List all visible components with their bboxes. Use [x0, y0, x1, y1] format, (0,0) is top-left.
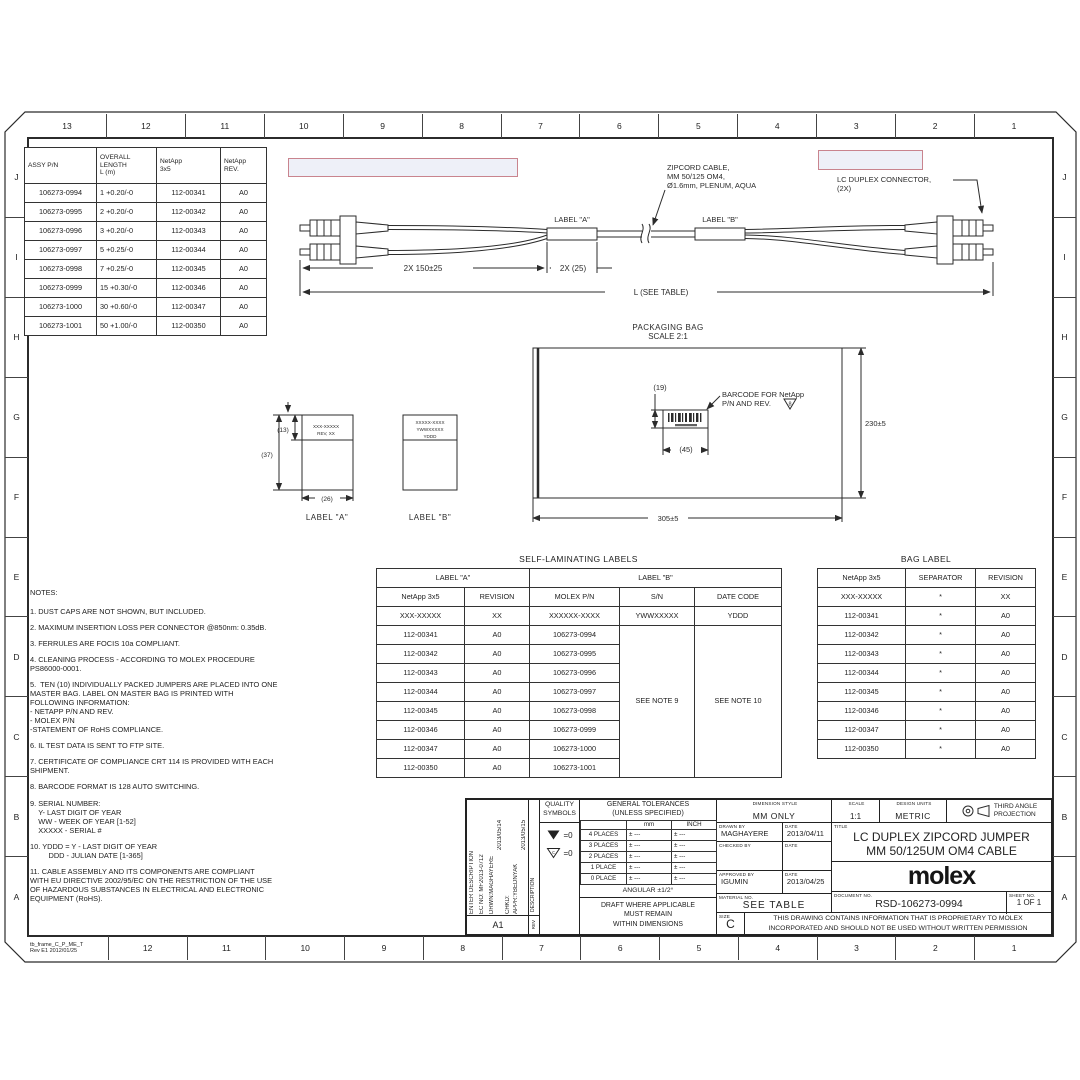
note-item: 8. BARCODE FORMAT IS 128 AUTO SWITCHING.: [30, 782, 382, 791]
tolerance-inch-value: ± ---: [672, 852, 717, 863]
projection-cell: THIRD ANGLE PROJECTION: [947, 800, 1051, 822]
dimension-style-value: MM ONLY: [753, 811, 796, 821]
cell-netapp-rev: A0: [221, 317, 267, 336]
label-b-caption: LABEL "B": [409, 513, 451, 522]
cell-netapp-pn: 112-00343: [818, 645, 906, 664]
cell-separator: *: [906, 607, 976, 626]
connector-callout: LC DUPLEX CONNECTOR, (2X): [837, 175, 982, 213]
svg-text:ZIPCORD CABLE,: ZIPCORD CABLE,: [667, 163, 730, 172]
lc-connector-right: [905, 216, 993, 264]
svg-text:LC DUPLEX CONNECTOR,: LC DUPLEX CONNECTOR,: [837, 175, 931, 184]
description-column: DESCRIPTION REV: [529, 800, 540, 934]
barcode-label: [663, 410, 708, 428]
frame-grid-number: 11: [187, 936, 266, 960]
tolerance-places-label: 1 PLACE: [581, 863, 627, 874]
tolerances-table: mm INCH 4 PLACES ± --- ± --- 3 PLACES ± …: [580, 820, 717, 885]
revision-appr-date: 2013/05/15: [521, 802, 527, 850]
drawn-by-value: MAGHAYERE: [717, 829, 782, 838]
frame-grid-number: 4: [737, 114, 816, 138]
size-cell: SIZE C: [717, 912, 745, 934]
revision-history-strip: ENTER DESCRIPTION EC NO: MF2013-0712 DRW…: [467, 800, 529, 934]
size-value: C: [717, 919, 744, 929]
cell-separator: *: [906, 721, 976, 740]
revision-drwn-date: 2013/05/14: [497, 802, 503, 850]
logo-cell: molex: [832, 862, 1051, 892]
tolerance-places-label: 0 PLACE: [581, 874, 627, 885]
cell: A0: [465, 702, 530, 721]
cell-netapp-pn: 112-00344: [157, 241, 221, 260]
label-b-text-line1: XXXXX-XXXX: [415, 420, 444, 425]
quality-symbols-box: QUALITY SYMBOLS =0 c =0: [540, 800, 580, 934]
tolerance-places-label: 3 PLACES: [581, 841, 627, 852]
document-no-cell: DOCUMENT NO. RSD-106273-0994: [832, 892, 1007, 914]
cell-assy-pn: 106273-1000: [25, 298, 97, 317]
cell-revision: A0: [976, 626, 1036, 645]
frame-grid-number: 4: [738, 936, 817, 960]
frame-grid-number: 1: [974, 936, 1053, 960]
tolerance-mm-value: ± ---: [627, 863, 672, 874]
revision-description: ENTER DESCRIPTION: [469, 804, 475, 914]
frame-grid-letter: E: [1053, 537, 1076, 617]
assembly-part-number-table: ASSY P/N OVERALL LENGTH L (m) NetApp 3x5…: [24, 147, 267, 336]
cell-length: 50 +1.00/-0: [97, 317, 157, 336]
dim-19: (19): [653, 383, 667, 392]
frame-grid-number: 13: [28, 114, 106, 138]
column-header: SEPARATOR: [906, 569, 976, 588]
frame-grid-number: 10: [264, 114, 343, 138]
placeholder-cell: XX: [465, 607, 530, 626]
dim-25: 2X (25): [560, 264, 587, 273]
tolerance-mm-value: ± ---: [627, 841, 672, 852]
group-header-label-a: LABEL "A": [377, 569, 530, 588]
cell: A0: [465, 721, 530, 740]
svg-text:(2X): (2X): [837, 184, 852, 193]
frame-grid-number: 2: [895, 936, 974, 960]
cell-separator: *: [906, 626, 976, 645]
table-row: XXX-XXXXX * XX: [818, 588, 1036, 607]
table-row: 112-00342 * A0: [818, 626, 1036, 645]
label-b-drawing: XXXXX-XXXX YWWXXXXX YDDD LABEL "B": [403, 415, 457, 522]
cell-assy-pn: 106273-0996: [25, 222, 97, 241]
cell-netapp-pn: XXX-XXXXX: [818, 588, 906, 607]
frame-grid-letter: G: [1053, 377, 1076, 457]
self-laminating-labels-table: LABEL "A" LABEL "B" NetApp 3x5 REVISION …: [376, 568, 782, 778]
bag-title: PACKAGING BAG: [632, 323, 703, 332]
dim-150: 2X 150±25: [404, 264, 443, 273]
scale-label: SCALE: [832, 800, 879, 806]
cell: 106273-0995: [530, 645, 620, 664]
bag-outline: [533, 348, 842, 498]
cell-revision: A0: [976, 683, 1036, 702]
note-item: 7. CERTIFICATE OF COMPLIANCE CRT 114 IS …: [30, 757, 382, 775]
title-label: TITLE: [832, 823, 1051, 829]
flag-note-triangle-icon: 8: [784, 399, 796, 409]
tolerance-row: 0 PLACE ± --- ± ---: [581, 874, 717, 885]
cell-netapp-rev: A0: [221, 241, 267, 260]
frame-grid-number: 8: [423, 936, 502, 960]
cell-netapp-pn: 112-00346: [818, 702, 906, 721]
barcode-icon: [668, 413, 701, 426]
notes-section: NOTES: 1. DUST CAPS ARE NOT SHOWN, BUT I…: [30, 588, 382, 910]
sn-note-cell: SEE NOTE 9: [620, 626, 695, 778]
cell: 106273-0996: [530, 664, 620, 683]
column-header: OVERALL LENGTH L (m): [97, 148, 157, 184]
table-row: 106273-1001 50 +1.00/-0 112-00350 A0: [25, 317, 267, 336]
packaging-bag-drawing: PACKAGING BAG SCALE 2:1 (19): [525, 318, 895, 540]
tolerance-row: 4 PLACES ± --- ± ---: [581, 830, 717, 841]
table-row: 112-00347 * A0: [818, 721, 1036, 740]
cell: 112-00341: [377, 626, 465, 645]
cell: A0: [465, 645, 530, 664]
label-a-drawing: XXX-XXXXX REV, XX (13) (37) (26) LABEL "…: [261, 402, 353, 522]
column-header: NetApp 3x5: [377, 588, 465, 607]
scale-units-projection-row: SCALE 1:1 DESIGN UNITS METRIC THIRD ANGL…: [832, 800, 1051, 823]
cell-length: 1 +0.20/-0: [97, 184, 157, 203]
tolerance-inch-value: ± ---: [672, 863, 717, 874]
cell-length: 15 +0.30/-0: [97, 279, 157, 298]
critical-filled-triangle-icon: [546, 829, 561, 841]
frame-column-numbers-bottom: tb_frame_C_P_ME_T Rev E1 2012/01/25 1211…: [28, 936, 1053, 960]
cell-assy-pn: 106273-0994: [25, 184, 97, 203]
cell-length: 3 +0.20/-0: [97, 222, 157, 241]
placeholder-cell: XXXXXX-XXXX: [530, 607, 620, 626]
self-laminating-labels-title: SELF-LAMINATING LABELS: [376, 554, 781, 564]
frame-grid-letter: F: [5, 457, 28, 537]
dim-26: (26): [321, 496, 333, 503]
frame-grid-number: 5: [659, 936, 738, 960]
engineering-drawing-sheet: 13121110987654321 tb_frame_C_P_ME_T Rev …: [0, 0, 1080, 1080]
frame-grid-letter: C: [5, 696, 28, 776]
notes-title: NOTES:: [30, 588, 382, 597]
quality-symbol-value: =0: [563, 831, 572, 840]
column-header: NetApp REV.: [221, 148, 267, 184]
cell-netapp-pn: 112-00345: [818, 683, 906, 702]
dim-45: (45): [679, 445, 693, 454]
cell-revision: A0: [976, 645, 1036, 664]
cell: 106273-0999: [530, 721, 620, 740]
frame-grid-number: 12: [108, 936, 187, 960]
cell-netapp-pn: 112-00350: [818, 740, 906, 759]
drawing-title-cell: TITLE LC DUPLEX ZIPCORD JUMPER MM 50/125…: [832, 823, 1051, 862]
sheet-no-value: 1 OF 1: [1007, 898, 1051, 907]
inch-header: INCH: [672, 821, 717, 830]
tolerance-places-label: 2 PLACES: [581, 852, 627, 863]
frame-grid-number: 10: [265, 936, 344, 960]
label-a-text-line2: REV, XX: [317, 431, 335, 436]
cell-revision: A0: [976, 721, 1036, 740]
material-value: SEE TABLE: [717, 900, 831, 911]
tolerance-row: 3 PLACES ± --- ± ---: [581, 841, 717, 852]
cell-netapp-rev: A0: [221, 184, 267, 203]
drawn-by-cell: DRAWN BY MAGHAYERE DATE 2013/04/11: [717, 823, 831, 842]
frame-grid-number: 8: [422, 114, 501, 138]
frame-grid-letter: C: [1053, 696, 1076, 776]
note-item: 11. CABLE ASSEMBLY AND ITS COMPONENTS AR…: [30, 867, 382, 903]
cell: A0: [465, 664, 530, 683]
frame-grid-number: 9: [344, 936, 423, 960]
title-block: ENTER DESCRIPTION EC NO: MF2013-0712 DRW…: [465, 798, 1053, 936]
table-row: 106273-0995 2 +0.20/-0 112-00342 A0: [25, 203, 267, 222]
table-row: 106273-0994 1 +0.20/-0 112-00341 A0: [25, 184, 267, 203]
cell-netapp-pn: 112-00342: [818, 626, 906, 645]
cell-netapp-rev: A0: [221, 222, 267, 241]
frame-grid-number: 7: [501, 114, 580, 138]
projection-label: THIRD ANGLE PROJECTION: [994, 803, 1037, 819]
cell-netapp-pn: 112-00341: [818, 607, 906, 626]
tolerance-inch-value: ± ---: [672, 830, 717, 841]
note-item: 6. IL TEST DATA IS SENT TO FTP SITE.: [30, 741, 382, 750]
design-units-label: DESIGN UNITS: [880, 800, 946, 806]
tolerance-inch-value: ± ---: [672, 841, 717, 852]
label-a-text-line1: XXX-XXXXX: [313, 424, 339, 429]
document-row: DOCUMENT NO. RSD-106273-0994 SHEET NO. 1…: [832, 892, 1051, 914]
frame-grid-number: 2: [895, 114, 974, 138]
bag-label-title: BAG LABEL: [817, 554, 1035, 564]
table-row: 112-00343 * A0: [818, 645, 1036, 664]
frame-grid-number: 6: [580, 936, 659, 960]
rev-label: REV: [532, 920, 537, 929]
cell-assy-pn: 106273-1001: [25, 317, 97, 336]
document-no-value: RSD-106273-0994: [832, 898, 1006, 910]
frame-grid-number: 1: [974, 114, 1053, 138]
bag-label-table: NetApp 3x5 SEPARATOR REVISION XXX-XXXXX …: [817, 568, 1036, 759]
frame-grid-number: 9: [343, 114, 422, 138]
revision-chkd: CHKD:: [505, 804, 511, 914]
quality-symbol-1: =0: [540, 829, 579, 841]
frame-grid-number: 7: [502, 936, 581, 960]
placeholder-cell: YWWXXXXX: [620, 607, 695, 626]
label-b-text-line3: YDDD: [423, 434, 437, 439]
frame-template-label: tb_frame_C_P_ME_T Rev E1 2012/01/25: [28, 936, 108, 960]
third-angle-projection-icon: [961, 804, 991, 818]
cell: 112-00342: [377, 645, 465, 664]
cell-separator: *: [906, 588, 976, 607]
cell-revision: A0: [976, 664, 1036, 683]
cell-separator: *: [906, 702, 976, 721]
table-row: 112-00341 A0 106273-0994 SEE NOTE 9 SEE …: [377, 626, 782, 645]
dim-overall-length: L (SEE TABLE): [634, 288, 689, 297]
frame-grid-letter: B: [5, 776, 28, 856]
svg-text:8: 8: [788, 402, 791, 408]
empty-header: [581, 821, 627, 830]
note-item: 1. DUST CAPS ARE NOT SHOWN, BUT INCLUDED…: [30, 607, 382, 616]
scale-cell: SCALE 1:1: [832, 800, 880, 822]
cell-separator: *: [906, 683, 976, 702]
revision-appr: APPR:YBEDNYAK: [513, 804, 519, 914]
cell: A0: [465, 626, 530, 645]
table-row: 106273-0996 3 +0.20/-0 112-00343 A0: [25, 222, 267, 241]
column-header: REVISION: [465, 588, 530, 607]
cell: 106273-0997: [530, 683, 620, 702]
frame-grid-letter: G: [5, 377, 28, 457]
table-row: 106273-1000 30 +0.60/-0 112-00347 A0: [25, 298, 267, 317]
cell-netapp-pn: 112-00342: [157, 203, 221, 222]
cell-length: 30 +0.60/-0: [97, 298, 157, 317]
svg-text:P/N AND REV.: P/N AND REV.: [722, 399, 771, 408]
cell-netapp-rev: A0: [221, 298, 267, 317]
redaction-box-2: [818, 150, 923, 170]
scale-value: 1:1: [850, 812, 861, 821]
cell-assy-pn: 106273-0997: [25, 241, 97, 260]
revision-drwn: DRWN:MAGHAYERE: [489, 804, 495, 914]
angular-tolerance: ANGULAR ±1/2°: [580, 885, 716, 898]
cell: A0: [465, 740, 530, 759]
cell-length: 2 +0.20/-0: [97, 203, 157, 222]
cell-netapp-pn: 112-00350: [157, 317, 221, 336]
column-header: REVISION: [976, 569, 1036, 588]
frame-grid-number: 5: [658, 114, 737, 138]
tolerance-mm-value: ± ---: [627, 852, 672, 863]
drawing-title: LC DUPLEX ZIPCORD JUMPER MM 50/125UM OM4…: [832, 830, 1051, 859]
info-column: DIMENSION STYLE MM ONLY DRAWN BY MAGHAYE…: [717, 800, 832, 912]
frame-grid-number: 11: [185, 114, 264, 138]
table-row: 106273-0998 7 +0.25/-0 112-00345 A0: [25, 260, 267, 279]
tolerance-mm-value: ± ---: [627, 874, 672, 885]
description-label: DESCRIPTION: [531, 804, 536, 912]
sheet-no-cell: SHEET NO. 1 OF 1: [1007, 892, 1051, 914]
cell-revision: XX: [976, 588, 1036, 607]
drawn-date-value: 2013/04/11: [783, 829, 831, 838]
label-b-callout: LABEL "B": [702, 215, 738, 224]
frame-grid-letter: F: [1053, 457, 1076, 537]
column-header: S/N: [620, 588, 695, 607]
revision-ec-no: EC NO: MF2013-0712: [479, 804, 485, 914]
column-header: DATE CODE: [695, 588, 782, 607]
frame-grid-number: 3: [816, 114, 895, 138]
cell: 106273-1000: [530, 740, 620, 759]
dim-305: 305±5: [658, 514, 679, 523]
barcode-callout: BARCODE FOR NetApp P/N AND REV. 8: [707, 390, 804, 409]
cell-separator: *: [906, 664, 976, 683]
cell-separator: *: [906, 740, 976, 759]
cell: 106273-0994: [530, 626, 620, 645]
label-a-callout: LABEL "A": [554, 215, 590, 224]
bag-scale: SCALE 2:1: [648, 332, 688, 341]
tolerance-places-label: 4 PLACES: [581, 830, 627, 841]
cell-netapp-rev: A0: [221, 203, 267, 222]
label-b-sleeve: [695, 228, 745, 240]
dim-37: (37): [261, 452, 273, 459]
column-header: ASSY P/N: [25, 148, 97, 184]
redaction-box-1: [288, 158, 518, 177]
lc-connector-left: [300, 216, 388, 264]
cell: 112-00345: [377, 702, 465, 721]
cell: 112-00343: [377, 664, 465, 683]
open-triangle-c-icon: c: [546, 847, 561, 859]
bag-dimensions: (19) (45) 230±5 305±5: [533, 348, 895, 523]
cell-netapp-rev: A0: [221, 279, 267, 298]
fiber-cables: [388, 224, 905, 255]
date-code-note-cell: SEE NOTE 10: [695, 626, 782, 778]
molex-logo: molex: [908, 862, 975, 891]
general-tolerances-box: GENERAL TOLERANCES (UNLESS SPECIFIED) mm…: [580, 800, 717, 934]
label-a-sleeve: [547, 228, 597, 240]
cell-revision: A0: [976, 702, 1036, 721]
cell: 106273-1001: [530, 759, 620, 778]
frame-column-numbers-top: 13121110987654321: [28, 114, 1053, 138]
svg-text:Ø1.6mm, PLENUM, AQUA: Ø1.6mm, PLENUM, AQUA: [667, 181, 756, 190]
cell-revision: A0: [976, 607, 1036, 626]
cell-netapp-pn: 112-00347: [818, 721, 906, 740]
dimension-style-cell: DIMENSION STYLE MM ONLY: [717, 800, 831, 823]
design-units-cell: DESIGN UNITS METRIC: [880, 800, 947, 822]
cell: A0: [465, 683, 530, 702]
cell-assy-pn: 106273-0998: [25, 260, 97, 279]
note-item: 4. CLEANING PROCESS - ACCORDING TO MOLEX…: [30, 655, 382, 673]
table-row: 112-00350 * A0: [818, 740, 1036, 759]
cell-netapp-pn: 112-00344: [818, 664, 906, 683]
cell-length: 5 +0.25/-0: [97, 241, 157, 260]
column-header: MOLEX P/N: [530, 588, 620, 607]
tolerance-inch-value: ± ---: [672, 874, 717, 885]
note-item: 3. FERRULES ARE FOCIS 10a COMPLIANT.: [30, 639, 382, 648]
table-row: 112-00346 * A0: [818, 702, 1036, 721]
cell-netapp-pn: 112-00343: [157, 222, 221, 241]
cell-netapp-pn: 112-00345: [157, 260, 221, 279]
cell-length: 7 +0.25/-0: [97, 260, 157, 279]
title-info-column: SCALE 1:1 DESIGN UNITS METRIC THIRD ANGL…: [832, 800, 1051, 912]
checked-by-cell: CHECKED BY DATE: [717, 842, 831, 871]
frame-grid-letter: E: [5, 537, 28, 617]
draft-note: DRAFT WHERE APPLICABLE MUST REMAIN WITHI…: [580, 898, 716, 929]
note-item: 9. SERIAL NUMBER: Y- LAST DIGIT OF YEAR …: [30, 799, 382, 835]
approved-by-cell: APPROVED BY IGUMIN DATE 2013/04/25: [717, 871, 831, 894]
note-item: 10. YDDD = Y - LAST DIGIT OF YEAR DDD - …: [30, 842, 382, 860]
cell: 106273-0998: [530, 702, 620, 721]
frame-grid-letter: B: [1053, 776, 1076, 856]
quality-symbols-heading: QUALITY SYMBOLS: [540, 800, 579, 823]
revision-id: A1: [467, 915, 529, 934]
mm-header: mm: [627, 821, 672, 830]
cell-netapp-rev: A0: [221, 260, 267, 279]
cell: 112-00346: [377, 721, 465, 740]
cell: 112-00344: [377, 683, 465, 702]
cell: A0: [465, 759, 530, 778]
cell-assy-pn: 106273-0999: [25, 279, 97, 298]
quality-symbol-2: c =0: [540, 847, 579, 859]
column-header: NetApp 3x5: [157, 148, 221, 184]
tolerance-row: 2 PLACES ± --- ± ---: [581, 852, 717, 863]
placeholder-cell: YDDD: [695, 607, 782, 626]
frame-grid-letter: A: [5, 856, 28, 936]
table-row: 106273-0997 5 +0.25/-0 112-00344 A0: [25, 241, 267, 260]
cell: 112-00347: [377, 740, 465, 759]
cell: 112-00350: [377, 759, 465, 778]
cell-netapp-pn: 112-00346: [157, 279, 221, 298]
table-row: 106273-0999 15 +0.30/-0 112-00346 A0: [25, 279, 267, 298]
cell-revision: A0: [976, 740, 1036, 759]
label-a-caption: LABEL "A": [306, 513, 348, 522]
frame-grid-number: 6: [579, 114, 658, 138]
cell-separator: *: [906, 645, 976, 664]
svg-text:BARCODE FOR NetApp: BARCODE FOR NetApp: [722, 390, 804, 399]
frame-grid-letter: D: [5, 616, 28, 696]
table-row: 112-00341 * A0: [818, 607, 1036, 626]
frame-grid-letter: A: [1053, 856, 1076, 936]
approved-by-value: IGUMIN: [717, 877, 782, 886]
cell-netapp-pn: 112-00347: [157, 298, 221, 317]
dim-230: 230±5: [865, 419, 886, 428]
checked-by-label: CHECKED BY: [717, 842, 782, 848]
cell-assy-pn: 106273-0995: [25, 203, 97, 222]
tolerance-mm-value: ± ---: [627, 830, 672, 841]
label-b-text-line2: YWWXXXXX: [416, 427, 443, 432]
tolerances-heading: GENERAL TOLERANCES (UNLESS SPECIFIED): [580, 800, 716, 820]
group-header-label-b: LABEL "B": [530, 569, 782, 588]
note-item: 2. MAXIMUM INSERTION LOSS PER CONNECTOR …: [30, 623, 382, 632]
dimension-style-label: DIMENSION STYLE: [717, 800, 831, 806]
cell-netapp-pn: 112-00341: [157, 184, 221, 203]
